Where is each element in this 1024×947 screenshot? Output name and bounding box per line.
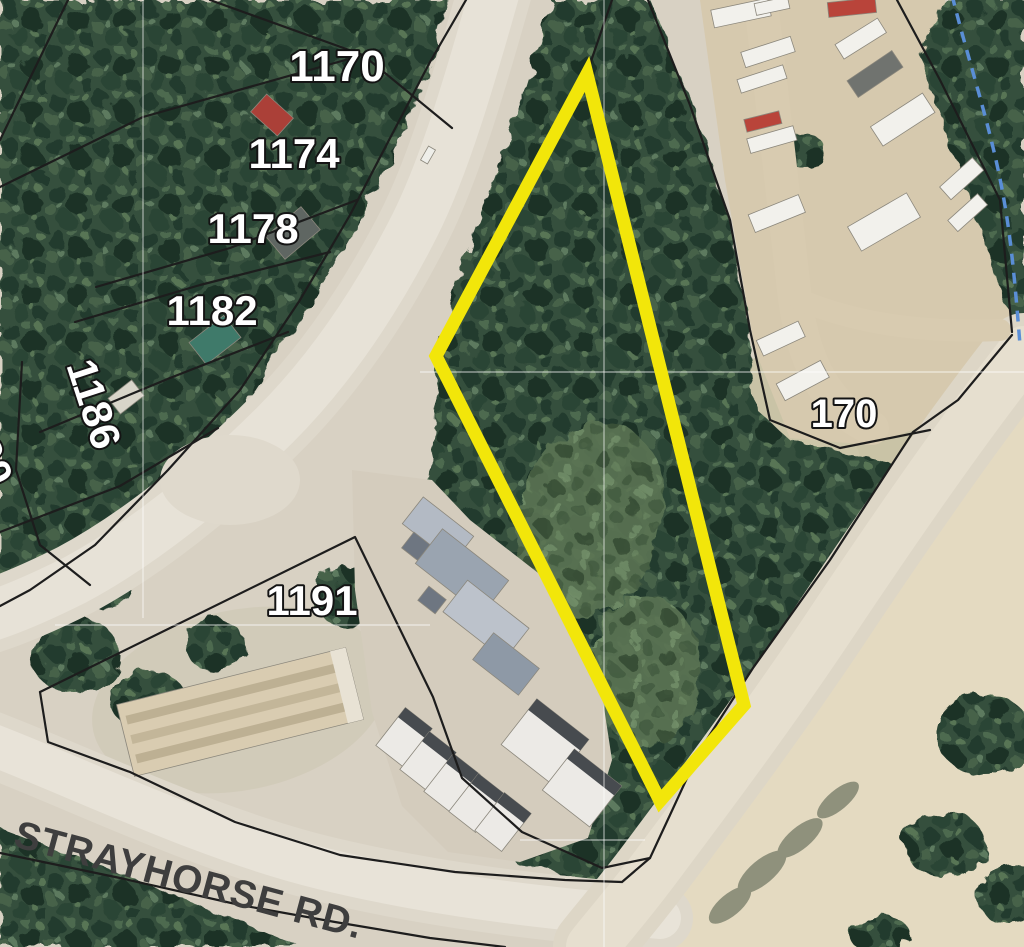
parcel-label-1174: 1174: [248, 130, 340, 177]
parcel-label-170: 170: [811, 392, 878, 436]
parcel-label-1191: 1191: [266, 577, 357, 624]
map-canvas: 1170 1174 1178 1182 1186 90 1191 170 STR…: [0, 0, 1024, 947]
tree-clump: [905, 811, 985, 879]
parcel-label-1170: 1170: [289, 42, 384, 91]
aerial-parcel-map: 1170 1174 1178 1182 1186 90 1191 170 STR…: [0, 0, 1024, 947]
tree-clump: [185, 619, 245, 671]
parcel-label-1182: 1182: [166, 287, 257, 334]
parcel-label-1178: 1178: [207, 205, 298, 252]
scrub-patch: [590, 595, 700, 745]
gravel-clearing: [160, 435, 300, 525]
